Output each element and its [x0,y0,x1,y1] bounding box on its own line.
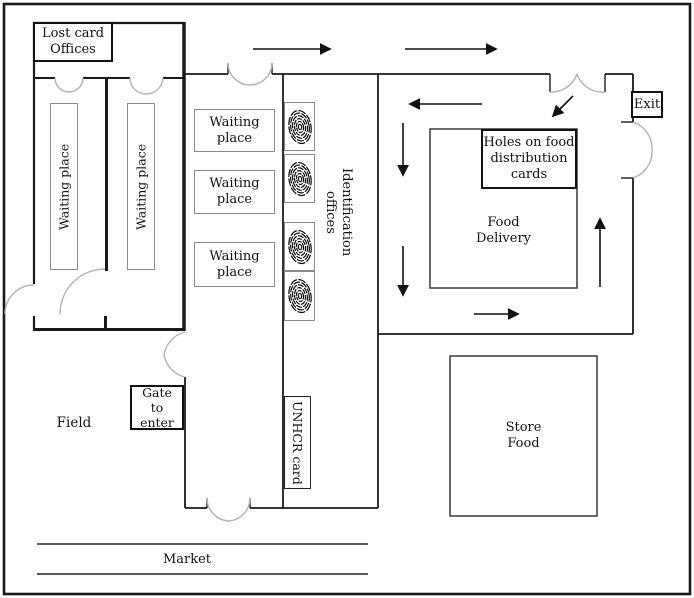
waiting-place-room-2: Waiting place [194,170,275,214]
food-delivery-label: Food Delivery [430,206,577,256]
exit-box: Exit [631,91,663,118]
floor-plan-diagram: Lost card Offices Waiting place Waiting … [0,0,694,598]
field-label: Field [46,413,102,433]
lost-card-offices-box: Lost card Offices [33,22,113,62]
fingerprint-scanner-1 [284,102,315,151]
arrow-diagonal-entrance [553,96,573,116]
fingerprint-scanner-3 [284,222,315,271]
fingerprint-scanner-4 [284,271,315,321]
fingerprint-icon [288,229,312,265]
waiting-place-column-2: Waiting place [127,103,155,270]
waiting-place-room-3: Waiting place [194,242,275,287]
gate-to-enter-box: Gate to enter [130,385,184,430]
holes-on-food-distribution-cards-box: Holes on food distribution cards [481,129,577,189]
store-food-label: Store Food [450,409,597,462]
unhcr-card-box: UNHCR card [284,396,311,489]
fingerprint-icon [288,109,312,145]
fingerprint-icon [288,278,312,314]
fingerprint-scanner-2 [284,154,315,203]
waiting-place-column-1: Waiting place [50,103,78,270]
identification-offices-label: Identification offices [320,144,356,280]
fingerprint-icon [288,161,312,197]
waiting-place-room-1: Waiting place [194,109,275,152]
market-label: Market [37,550,337,570]
floor-plan-linework [0,0,694,598]
